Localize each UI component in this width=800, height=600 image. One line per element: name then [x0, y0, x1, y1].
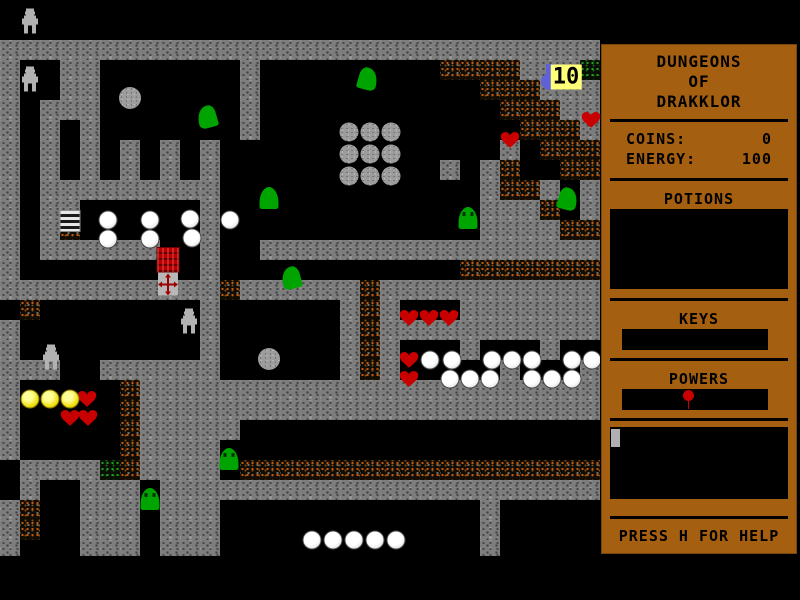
wall-tile [200, 460, 220, 480]
potions-header: POTIONS [602, 190, 796, 208]
coins-label: COINS: [626, 130, 686, 148]
wall-tile [160, 420, 180, 440]
orb-sprite [421, 351, 440, 370]
wall-tile [560, 300, 580, 320]
moss-tile [580, 60, 600, 80]
wall-tile [480, 520, 500, 540]
cross-sprite [158, 273, 178, 296]
orb-sprite [99, 230, 118, 249]
wall-tile [200, 140, 220, 160]
label-sprite: 10 [551, 65, 582, 90]
wall-tile [140, 360, 160, 380]
orb-sprite [443, 351, 462, 370]
wall-tile [260, 380, 280, 400]
wall-tile [180, 540, 200, 556]
rb-body [183, 316, 195, 326]
wall-tile [140, 40, 160, 60]
wall-tile [480, 220, 500, 240]
wall-tile [60, 180, 80, 200]
rubble-tile [320, 460, 340, 480]
rubble-tile [520, 120, 540, 140]
wall-tile [120, 180, 140, 200]
orb-sprite [483, 351, 502, 370]
wall-tile [240, 400, 260, 420]
wall-tile [180, 400, 200, 420]
rubble-tile [440, 60, 460, 80]
rubble-tile [380, 460, 400, 480]
wall-tile [480, 400, 500, 420]
wall-tile [240, 60, 260, 80]
wall-tile [240, 40, 260, 60]
orb-sprite [481, 370, 500, 389]
wall-tile [200, 40, 220, 60]
wall-tile [520, 320, 540, 340]
wall-tile [40, 120, 60, 140]
orb-sprite [324, 531, 343, 550]
rubble-tile [500, 100, 520, 120]
wall-tile [60, 100, 80, 120]
rubble-tile [520, 180, 540, 200]
wall-tile [520, 200, 540, 220]
wall-tile [540, 40, 560, 60]
wall-tile [560, 480, 580, 500]
energy-label: ENERGY: [626, 150, 696, 168]
orb-sprite [345, 531, 364, 550]
wall-tile [160, 140, 180, 160]
wall-tile [160, 460, 180, 480]
wall-tile [160, 540, 180, 556]
wall-tile [260, 40, 280, 60]
wall-tile [380, 40, 400, 60]
wall-tile [300, 400, 320, 420]
wall-tile [240, 280, 260, 300]
keys-box [622, 329, 768, 350]
wall-tile [20, 460, 40, 480]
wall-tile [500, 320, 520, 340]
wall-tile [500, 380, 520, 400]
rb-head [26, 67, 34, 74]
wall-tile [220, 420, 240, 440]
rubble-tile [120, 400, 140, 420]
rubble-tile [560, 220, 580, 240]
wall-tile [320, 400, 340, 420]
wall-tile [560, 100, 580, 120]
wall-tile [400, 240, 420, 260]
wall-tile [520, 400, 540, 420]
ball-sprite [340, 123, 359, 142]
rubble-tile [460, 260, 480, 280]
rubble-tile [220, 280, 240, 300]
wall-tile [160, 440, 180, 460]
wall-tile [280, 40, 300, 60]
orb-sprite [183, 229, 202, 248]
rubble-tile [480, 80, 500, 100]
wall-tile [0, 360, 20, 380]
game-title-line-3: DRAKKLOR [602, 92, 796, 112]
wall-tile [560, 240, 580, 260]
wall-tile [0, 220, 20, 240]
slime-sprite [220, 448, 239, 470]
wall-tile [200, 200, 220, 220]
wall-tile [420, 240, 440, 260]
wall-tile [420, 400, 440, 420]
wall-tile [160, 360, 180, 380]
wall-tile [260, 280, 280, 300]
orb-sprite [523, 351, 542, 370]
orb-sprite [543, 370, 562, 389]
wall-tile [280, 400, 300, 420]
rubble-tile [480, 60, 500, 80]
rubble-tile [480, 260, 500, 280]
wall-tile [80, 240, 100, 260]
wall-tile [500, 300, 520, 320]
wall-tile [200, 420, 220, 440]
wall-tile [0, 520, 20, 540]
wall-tile [520, 240, 540, 260]
orb-sprite [461, 370, 480, 389]
wall-tile [200, 520, 220, 540]
wall-tile [560, 320, 580, 340]
wall-tile [0, 140, 20, 160]
wall-tile [480, 160, 500, 180]
wall-tile [180, 40, 200, 60]
rubble-tile [560, 260, 580, 280]
rubble-tile [480, 460, 500, 480]
wall-tile [100, 40, 120, 60]
energy-value: 100 [742, 150, 772, 168]
rubble-tile [360, 280, 380, 300]
wall-tile [500, 400, 520, 420]
wall-tile [480, 300, 500, 320]
wall-tile [0, 380, 20, 400]
wall-tile [540, 400, 560, 420]
wall-tile [180, 520, 200, 540]
ball-sprite [382, 123, 401, 142]
wall-tile [480, 40, 500, 60]
wall-tile [40, 240, 60, 260]
wall-tile [440, 400, 460, 420]
wall-tile [40, 40, 60, 60]
wall-tile [480, 180, 500, 200]
rubble-tile [260, 460, 280, 480]
rubble-tile [500, 180, 520, 200]
wall-tile [240, 480, 260, 500]
rubble-tile [460, 60, 480, 80]
rubble-tile [540, 460, 560, 480]
ball-sprite [361, 145, 380, 164]
wall-tile [200, 280, 220, 300]
wall-tile [260, 480, 280, 500]
rubble-tile [500, 260, 520, 280]
wall-tile [460, 480, 480, 500]
wall-tile [100, 500, 120, 520]
rb-body [24, 74, 36, 84]
wall-tile [480, 500, 500, 520]
rubble-tile [360, 360, 380, 380]
rb-head [26, 9, 34, 16]
wall-tile [160, 180, 180, 200]
rubble-tile [400, 460, 420, 480]
wall-tile [580, 480, 600, 500]
wall-tile [340, 40, 360, 60]
wall-tile [380, 380, 400, 400]
wall-tile [380, 400, 400, 420]
orb-sprite [366, 531, 385, 550]
wall-tile [320, 380, 340, 400]
robot-sprite [41, 345, 61, 370]
dungeon-map[interactable]: 10 [0, 0, 600, 556]
wall-tile [580, 240, 600, 260]
wall-tile [200, 260, 220, 280]
wall-tile [520, 40, 540, 60]
wall-tile [200, 480, 220, 500]
wall-tile [180, 480, 200, 500]
rubble-tile [580, 220, 600, 240]
slime-sprite [260, 187, 279, 209]
wall-tile [380, 300, 400, 320]
wall-tile [40, 100, 60, 120]
rubble-tile [500, 460, 520, 480]
wall-tile [360, 380, 380, 400]
wall-tile [540, 340, 560, 360]
wall-tile [520, 480, 540, 500]
wall-tile [320, 240, 340, 260]
wall-tile [100, 280, 120, 300]
keys-header: KEYS [602, 310, 796, 328]
coins-value: 0 [762, 130, 772, 148]
robot-sprite [20, 67, 40, 92]
wall-tile [0, 200, 20, 220]
wall-tile [40, 140, 60, 160]
wall-tile [280, 480, 300, 500]
red-pin-power-icon [683, 390, 694, 401]
wall-tile [0, 100, 20, 120]
orb-sprite [563, 351, 582, 370]
wall-tile [120, 480, 140, 500]
rb-legs [24, 26, 28, 34]
wall-tile [540, 220, 560, 240]
wall-tile [40, 220, 60, 240]
wall-tile [440, 40, 460, 60]
chest-sprite [157, 247, 180, 273]
orb-sprite [141, 211, 160, 230]
wall-tile [540, 480, 560, 500]
wall-tile [540, 280, 560, 300]
slime-sprite [356, 66, 380, 92]
wall-tile [420, 480, 440, 500]
heart-sprite [61, 410, 80, 427]
wall-tile [160, 160, 180, 180]
ball-sprite [382, 145, 401, 164]
rubble-tile [520, 260, 540, 280]
wall-tile [40, 200, 60, 220]
ball-sprite [340, 145, 359, 164]
wall-tile [300, 280, 320, 300]
wall-tile [0, 40, 20, 60]
wall-tile [520, 280, 540, 300]
wall-tile [360, 240, 380, 260]
wall-tile [340, 400, 360, 420]
slime-sprite [459, 207, 478, 229]
wall-tile [200, 360, 220, 380]
wall-tile [160, 480, 180, 500]
wall-tile [0, 500, 20, 520]
wall-tile [580, 400, 600, 420]
rubble-tile [560, 140, 580, 160]
wall-tile [0, 540, 20, 556]
wall-tile [460, 300, 480, 320]
wall-tile [140, 280, 160, 300]
separator [610, 119, 788, 122]
wall-tile [520, 60, 540, 80]
wall-tile [360, 480, 380, 500]
rubble-tile [520, 460, 540, 480]
wall-tile [400, 280, 420, 300]
wall-tile [20, 360, 40, 380]
wall-tile [160, 380, 180, 400]
wall-tile [340, 240, 360, 260]
wall-tile [580, 40, 600, 60]
wall-tile [280, 380, 300, 400]
wall-tile [180, 460, 200, 480]
separator [610, 418, 788, 421]
wall-tile [440, 160, 460, 180]
wall-tile [240, 120, 260, 140]
wall-tile [200, 220, 220, 240]
rubble-tile [540, 140, 560, 160]
rb-head [47, 345, 55, 352]
wall-tile [200, 340, 220, 360]
ladder-sprite [60, 210, 81, 232]
cr-h [161, 284, 175, 286]
rubble-tile [420, 460, 440, 480]
rubble-tile [520, 80, 540, 100]
wall-tile [440, 240, 460, 260]
wall-tile [500, 40, 520, 60]
wall-tile [120, 160, 140, 180]
status-sidebar: DUNGEONS OF DRAKKLOR COINS: 0 ENERGY: 10… [602, 45, 796, 553]
wall-tile [580, 280, 600, 300]
wall-tile [60, 40, 80, 60]
wall-tile [560, 400, 580, 420]
rubble-tile [360, 460, 380, 480]
wall-tile [380, 480, 400, 500]
wall-tile [140, 420, 160, 440]
powers-box [622, 389, 768, 410]
orb-sprite [387, 531, 406, 550]
wall-tile [120, 280, 140, 300]
wall-tile [480, 540, 500, 556]
wall-tile [20, 40, 40, 60]
wall-tile [40, 180, 60, 200]
wall-tile [420, 40, 440, 60]
rubble-tile [560, 120, 580, 140]
wall-tile [200, 400, 220, 420]
message-box-marker [611, 429, 620, 447]
wall-tile [340, 280, 360, 300]
wall-tile [240, 100, 260, 120]
wall-tile [280, 240, 300, 260]
wall-tile [380, 280, 400, 300]
wall-tile [200, 440, 220, 460]
game-title-line-1: DUNGEONS [602, 52, 796, 72]
wall-tile [400, 400, 420, 420]
wall-tile [340, 380, 360, 400]
rubble-tile [560, 460, 580, 480]
wall-tile [580, 300, 600, 320]
wall-tile [180, 280, 200, 300]
wall-tile [160, 40, 180, 60]
wall-tile [0, 420, 20, 440]
orb-sprite [99, 211, 118, 230]
wall-tile [540, 300, 560, 320]
wall-tile [0, 320, 20, 340]
wall-tile [240, 80, 260, 100]
orb-sprite [523, 370, 542, 389]
wall-tile [0, 80, 20, 100]
wall-tile [0, 180, 20, 200]
wall-tile [120, 360, 140, 380]
wall-tile [580, 180, 600, 200]
wall-tile [380, 320, 400, 340]
rubble-tile [580, 260, 600, 280]
rubble-tile [500, 60, 520, 80]
wall-tile [180, 440, 200, 460]
orb-sprite [221, 211, 240, 230]
wall-tile [540, 240, 560, 260]
orb-sprite [303, 531, 322, 550]
wall-tile [120, 500, 140, 520]
wall-tile [460, 240, 480, 260]
wall-tile [140, 400, 160, 420]
coins-stat: COINS: 0 [626, 130, 772, 148]
wall-tile [140, 380, 160, 400]
wall-tile [380, 360, 400, 380]
wall-tile [180, 420, 200, 440]
robot-sprite [179, 309, 199, 334]
rubble-tile [300, 460, 320, 480]
rubble-tile [540, 100, 560, 120]
wall-tile [80, 480, 100, 500]
rubble-tile [20, 520, 40, 540]
wall-tile [20, 480, 40, 500]
wall-tile [400, 480, 420, 500]
wall-tile [80, 60, 100, 80]
separator [610, 178, 788, 181]
wall-tile [100, 180, 120, 200]
rubble-tile [120, 460, 140, 480]
wall-tile [120, 520, 140, 540]
help-text: PRESS H FOR HELP [602, 527, 796, 545]
rubble-tile [500, 80, 520, 100]
wall-tile [300, 240, 320, 260]
wall-tile [260, 240, 280, 260]
wall-tile [160, 400, 180, 420]
ball-sprite [340, 167, 359, 186]
wall-tile [140, 460, 160, 480]
wall-tile [200, 500, 220, 520]
wall-tile [120, 540, 140, 556]
separator [610, 358, 788, 361]
wall-tile [40, 160, 60, 180]
wall-tile [440, 480, 460, 500]
wall-tile [460, 340, 480, 360]
wall-tile [200, 180, 220, 200]
wall-tile [500, 280, 520, 300]
wall-tile [100, 480, 120, 500]
wall-tile [340, 340, 360, 360]
rb-legs [183, 326, 187, 334]
